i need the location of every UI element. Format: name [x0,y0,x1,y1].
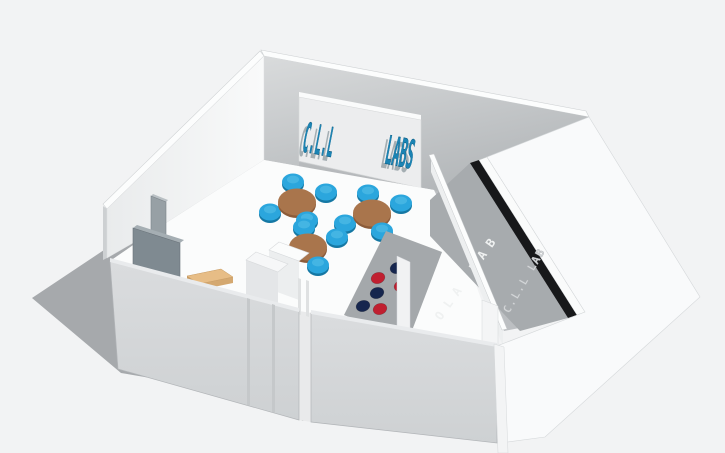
front-wall-seam-2 [272,304,275,413]
dots-wall-end-post[interactable] [397,256,410,336]
table-top[interactable] [353,200,391,227]
corridor-door-slab[interactable] [482,300,498,347]
back-left-wall-end-cap [103,206,107,260]
stool-highlight [320,186,332,194]
table-top[interactable] [278,189,316,216]
stool-highlight [395,197,407,205]
stool-highlight [298,221,310,229]
stool-highlight [312,259,324,267]
stool-highlight [362,187,374,195]
stool-highlight [287,176,299,184]
front-wall-seam-1 [247,298,250,406]
3d-room-design-viewport: C.L.L C.L.L LABS LABS OLA LAB C.L.L LAB [0,0,725,453]
stool-highlight [339,217,351,225]
entrance-post-right[interactable] [306,280,309,317]
entrance-gap [299,311,311,422]
stool-highlight [264,206,276,214]
stool-highlight [331,231,343,239]
